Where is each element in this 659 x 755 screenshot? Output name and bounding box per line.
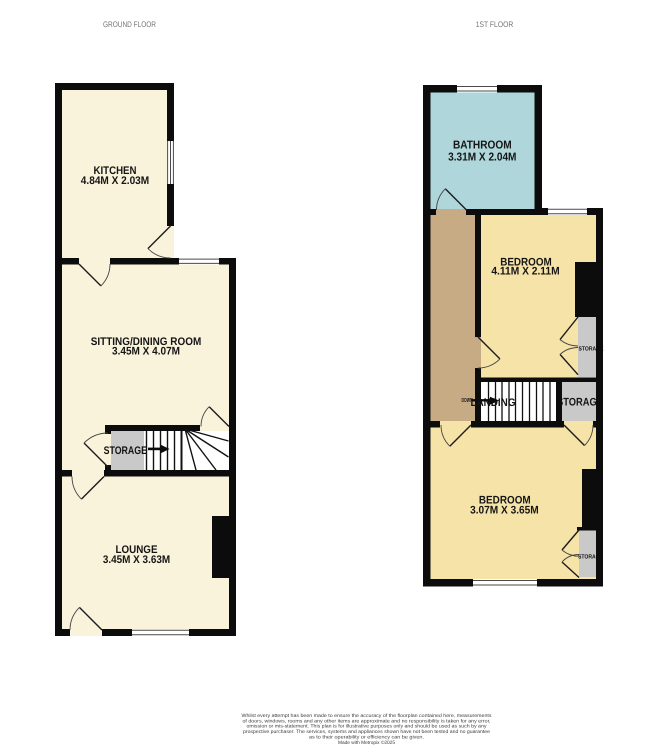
svg-text:prospective purchaser. The ser: prospective purchaser. The services, sys… xyxy=(243,729,490,735)
svg-text:STORAGE: STORAGE xyxy=(104,445,147,457)
svg-text:3.45M X 4.07M: 3.45M X 4.07M xyxy=(112,346,180,358)
svg-text:Whilst every attempt has been: Whilst every attempt has been made to en… xyxy=(242,713,493,719)
svg-text:BATHROOM: BATHROOM xyxy=(453,140,512,152)
svg-text:as to their operability or eff: as to their operability or efficiency ca… xyxy=(309,734,424,740)
svg-text:omission or mis-statement. Thi: omission or mis-statement. This plan is … xyxy=(247,724,488,730)
svg-text:4.11M X 2.11M: 4.11M X 2.11M xyxy=(491,266,559,278)
svg-text:1ST FLOOR: 1ST FLOOR xyxy=(476,20,514,29)
svg-text:GROUND FLOOR: GROUND FLOOR xyxy=(103,20,156,29)
svg-text:of doors, windows, rooms and a: of doors, windows, rooms and any other i… xyxy=(243,718,491,724)
svg-text:3.07M X 3.65M: 3.07M X 3.65M xyxy=(470,505,539,517)
svg-text:4.84M X 2.03M: 4.84M X 2.03M xyxy=(81,175,149,187)
svg-text:3.31M X 2.04M: 3.31M X 2.04M xyxy=(448,151,516,163)
svg-text:3.45M X 3.63M: 3.45M X 3.63M xyxy=(103,554,170,566)
svg-text:Made with Metropix ©2025: Made with Metropix ©2025 xyxy=(338,740,395,746)
